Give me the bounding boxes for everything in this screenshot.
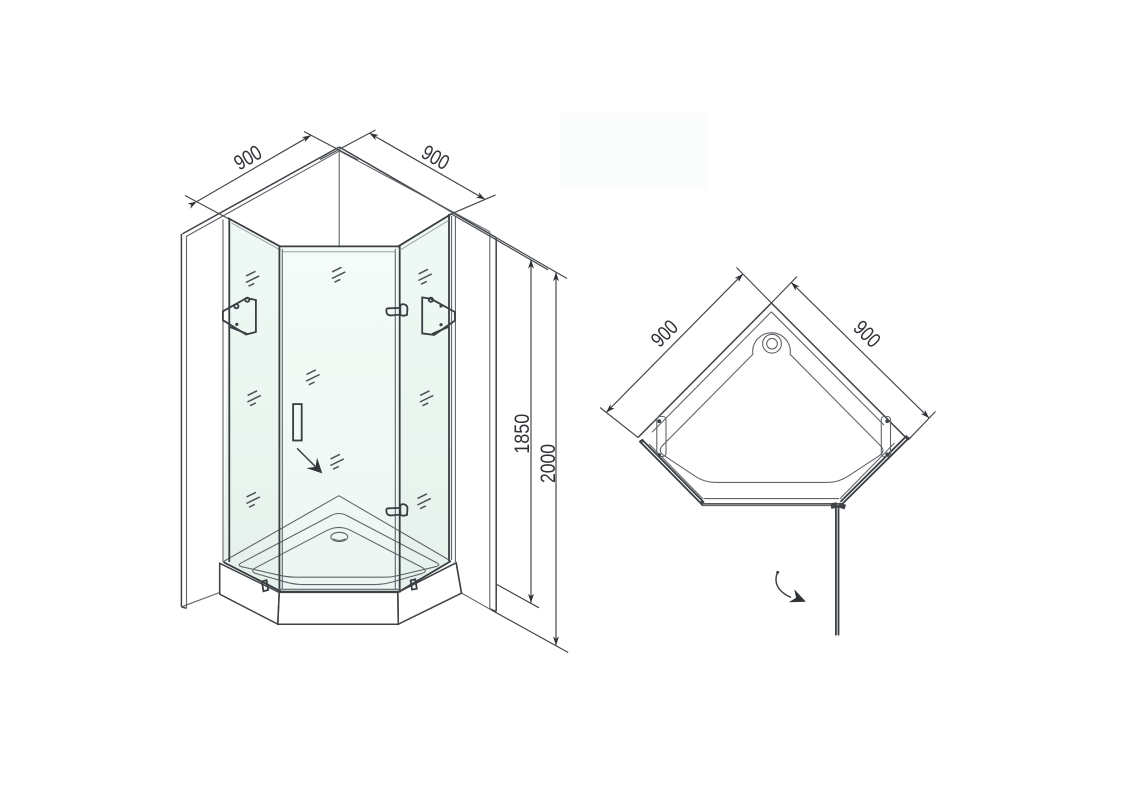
svg-text:1850: 1850 <box>511 414 534 454</box>
svg-text:2000: 2000 <box>537 444 560 483</box>
